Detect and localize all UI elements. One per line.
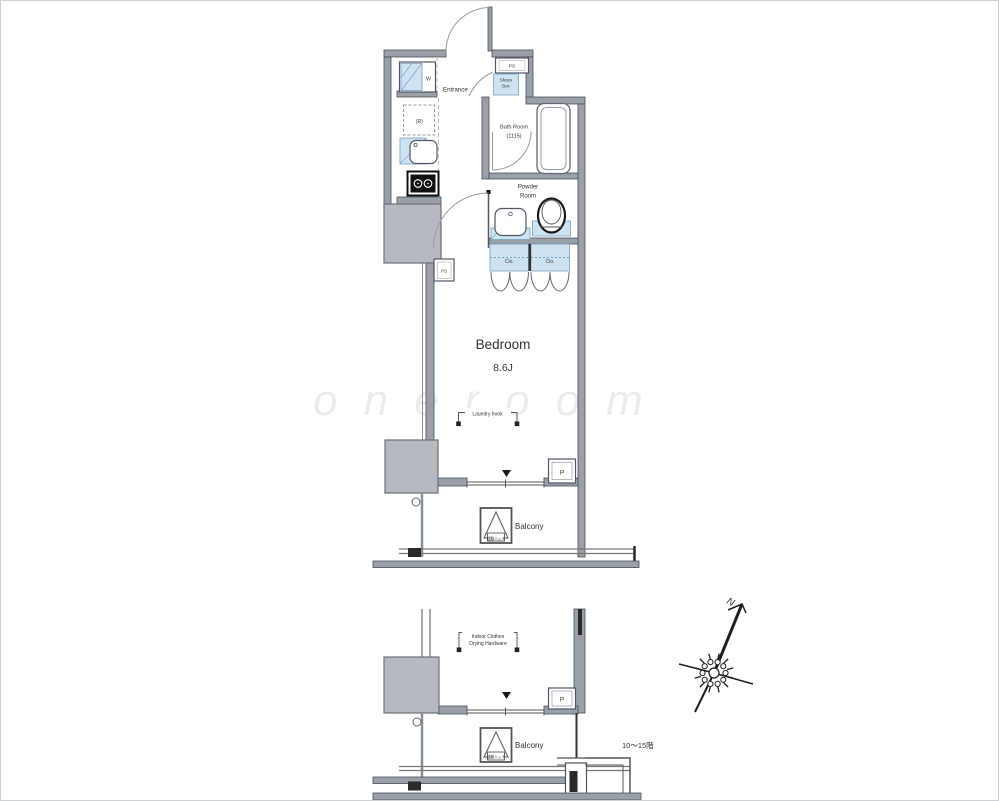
closet-curtains — [491, 272, 569, 291]
indoor-drying-hardware: Indoor Clothes Drying Hardware — [457, 631, 520, 652]
stove — [408, 172, 439, 196]
evacuation-hatch-label: 避難ハッチ — [487, 755, 506, 760]
washbasin — [491, 209, 530, 240]
drying-hardware-label: Indoor Clothes — [472, 634, 505, 640]
closet-left: Clo. — [490, 244, 529, 271]
balcony-partition-marker — [408, 782, 421, 791]
evacuation-hatch-label: 避難ハッチ — [487, 536, 506, 541]
balcony-label: Balcony — [515, 741, 543, 750]
balcony-window — [467, 480, 544, 488]
washer-label: W — [426, 77, 431, 83]
balcony-access-marker — [502, 692, 511, 699]
powder-room-label: Powder — [518, 185, 538, 191]
ps-duct-top: PS — [496, 58, 529, 73]
entrance-door-swing — [446, 8, 490, 52]
closet-divider — [529, 244, 532, 271]
bedroom-door-swing — [434, 190, 491, 248]
evacuation-hatch: 避難ハッチ — [481, 728, 512, 762]
bath-room-label: Bath Room — [500, 125, 528, 131]
meter-box-label: P — [560, 470, 564, 477]
meter-box: P — [549, 688, 576, 709]
meter-box-label: P — [560, 697, 564, 704]
floor-plan-image: oneroom — [0, 0, 999, 801]
floor-plan-drawing: oneroom — [1, 1, 999, 801]
powder-room-label: Room — [520, 194, 536, 200]
drain-symbol — [413, 718, 421, 726]
closet-label: Clo. — [546, 259, 555, 265]
floor-range-note: 10〜15階 — [622, 740, 654, 750]
bath-room-size-label: (1115) — [506, 134, 521, 140]
kitchen-sink — [400, 138, 437, 164]
drain-symbol — [412, 498, 420, 506]
balcony-label: Balcony — [515, 522, 543, 531]
upper-floor-plan: PS Shoes Box Entrance W (R) — [373, 7, 639, 568]
refrigerator-space: (R) — [404, 105, 435, 135]
compass-north-icon: N — [679, 596, 753, 712]
shoes-box-label: Box — [502, 84, 510, 89]
entrance-label: Entrance — [443, 87, 468, 94]
shoes-box-label: Shoes — [500, 78, 512, 83]
fridge-label: (R) — [416, 119, 423, 125]
closet-label: Clo. — [505, 259, 514, 265]
entry-step-line — [469, 72, 493, 96]
entrance-door-leaf — [488, 7, 492, 51]
closet-right: Clo. — [531, 244, 570, 271]
drying-hardware-label: Drying Hardware — [469, 641, 507, 647]
shoes-box: Shoes Box — [494, 74, 519, 95]
toilet — [533, 199, 571, 237]
bedroom-size-label: 8.6J — [493, 362, 513, 374]
watermark: oneroom — [313, 376, 669, 425]
meter-box: P — [549, 459, 576, 483]
pillar-bottom — [385, 440, 438, 493]
washing-machine-space: W — [400, 62, 436, 92]
pillar-top — [384, 204, 441, 263]
evacuation-hatch: 避難ハッチ — [481, 508, 512, 543]
bathtub — [537, 104, 570, 174]
bedroom-label: Bedroom — [476, 337, 531, 352]
laundry-hook-label: Laundry hook — [472, 412, 503, 418]
balcony-access-marker — [502, 470, 511, 477]
balcony-window — [467, 708, 544, 716]
ps-mid-label: PS — [441, 269, 447, 274]
ps-top-label: PS — [509, 64, 515, 70]
ps-duct-mid: PS — [434, 259, 454, 281]
balcony-partition-marker — [408, 548, 421, 557]
pillar — [384, 657, 439, 713]
lower-floor-plan: Indoor Clothes Drying Hardware P — [373, 609, 654, 800]
